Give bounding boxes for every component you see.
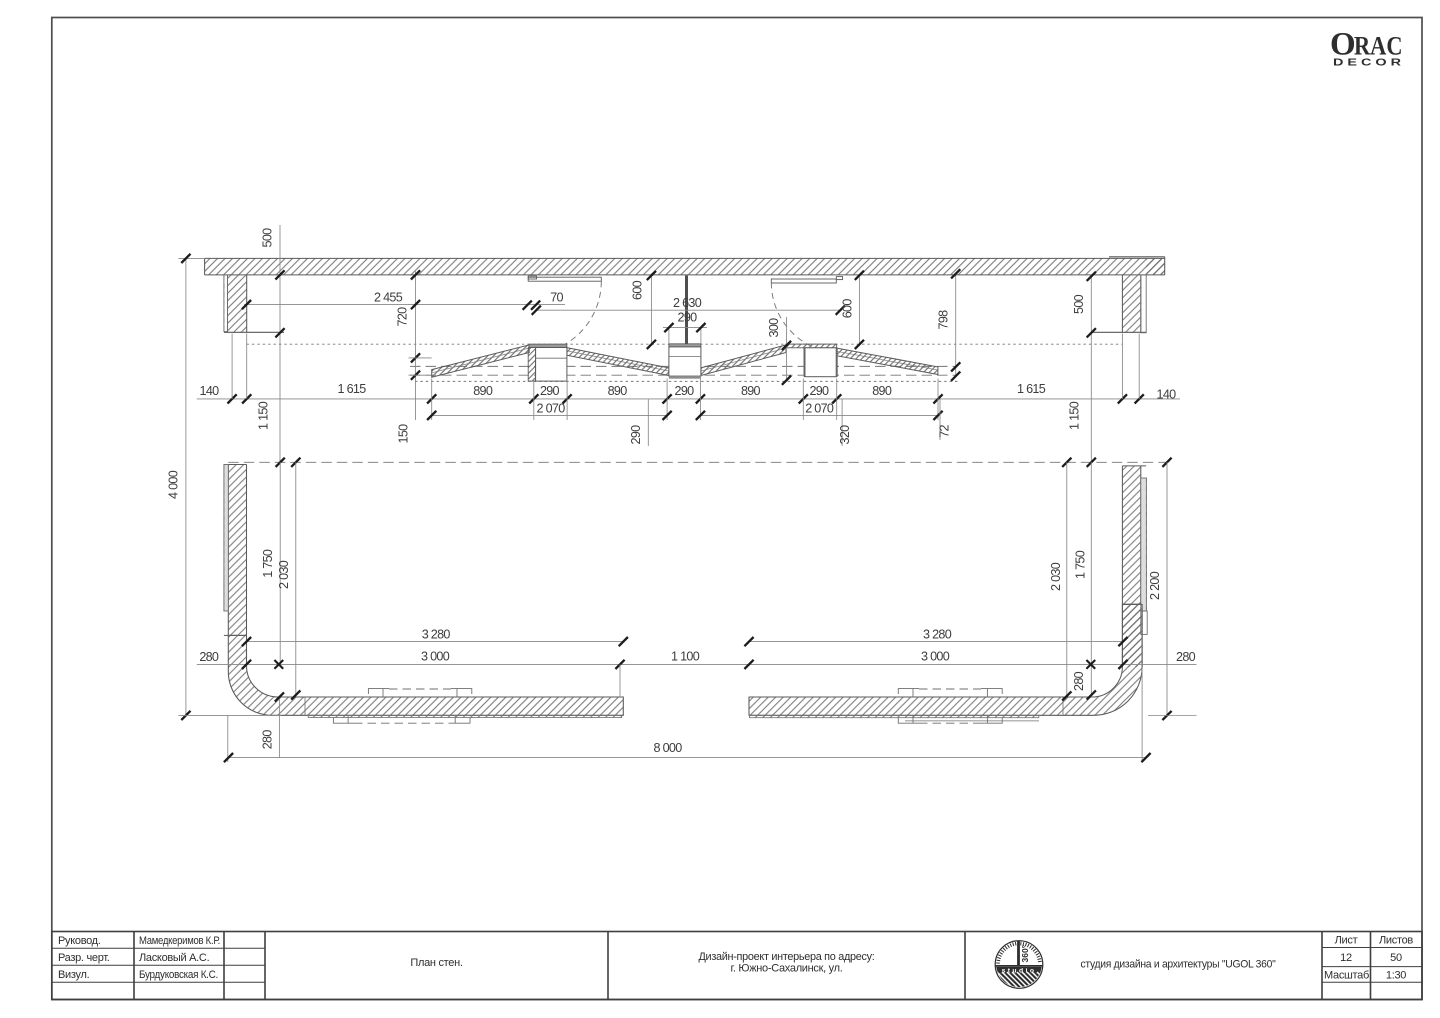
svg-text:3 280: 3 280 bbox=[923, 628, 952, 642]
svg-text:140: 140 bbox=[200, 384, 220, 398]
svg-text:Листов: Листов bbox=[1379, 935, 1413, 947]
svg-text:890: 890 bbox=[872, 384, 892, 398]
svg-text:290: 290 bbox=[678, 311, 698, 325]
svg-text:студия дизайна и архитектуры ": студия дизайна и архитектуры "UGOL 360" bbox=[1081, 959, 1276, 971]
svg-text:2 030: 2 030 bbox=[1049, 562, 1063, 591]
svg-text:Ласковый А.С.: Ласковый А.С. bbox=[139, 952, 210, 964]
svg-text:500: 500 bbox=[261, 228, 275, 248]
svg-text:720: 720 bbox=[396, 307, 410, 327]
svg-text:290: 290 bbox=[629, 425, 643, 445]
svg-text:600: 600 bbox=[840, 299, 854, 319]
svg-text:70: 70 bbox=[550, 291, 563, 305]
svg-text:3 000: 3 000 bbox=[921, 649, 950, 663]
svg-text:Масштаб: Масштаб bbox=[1324, 969, 1369, 981]
svg-text:RAC: RAC bbox=[1354, 32, 1403, 61]
svg-text:280: 280 bbox=[1072, 671, 1086, 691]
svg-text:8 000: 8 000 bbox=[653, 741, 682, 755]
svg-text:2 200: 2 200 bbox=[1148, 571, 1162, 600]
svg-text:798: 798 bbox=[936, 310, 950, 330]
svg-text:280: 280 bbox=[260, 730, 274, 750]
svg-text:1 750: 1 750 bbox=[261, 549, 275, 578]
svg-text:1 750: 1 750 bbox=[1074, 550, 1088, 579]
svg-text:150: 150 bbox=[397, 424, 411, 444]
svg-text:1 615: 1 615 bbox=[1017, 382, 1046, 396]
svg-text:1 150: 1 150 bbox=[1067, 401, 1081, 430]
svg-text:280: 280 bbox=[1176, 650, 1196, 664]
svg-text:2 630: 2 630 bbox=[673, 296, 702, 310]
svg-text:Руковод.: Руковод. bbox=[58, 935, 101, 947]
svg-text:Лист: Лист bbox=[1335, 935, 1358, 947]
svg-text:г. Южно-Сахалинск, ул.: г. Южно-Сахалинск, ул. bbox=[731, 962, 843, 974]
svg-text:studio: studio bbox=[1002, 968, 1037, 975]
svg-text:Дизайн-проект интерьера по адр: Дизайн-проект интерьера по адресу: bbox=[699, 951, 875, 963]
svg-text:3 000: 3 000 bbox=[421, 649, 450, 663]
svg-text:890: 890 bbox=[608, 384, 628, 398]
svg-text:1 615: 1 615 bbox=[337, 382, 366, 396]
svg-text:D E C O R: D E C O R bbox=[1333, 58, 1402, 69]
svg-text:290: 290 bbox=[540, 384, 560, 398]
svg-text:890: 890 bbox=[473, 384, 493, 398]
svg-text:Визул.: Визул. bbox=[58, 969, 90, 981]
svg-text:50: 50 bbox=[1390, 952, 1402, 964]
svg-text:1 150: 1 150 bbox=[257, 401, 271, 430]
svg-text:2 030: 2 030 bbox=[277, 560, 291, 589]
svg-text:Мамедкеримов К.Р.: Мамедкеримов К.Р. bbox=[139, 935, 220, 947]
svg-text:Разр. черт.: Разр. черт. bbox=[58, 952, 110, 964]
svg-text:890: 890 bbox=[741, 384, 761, 398]
svg-text:280: 280 bbox=[199, 650, 219, 664]
svg-text:72: 72 bbox=[938, 425, 952, 438]
svg-text:290: 290 bbox=[809, 384, 829, 398]
svg-text:320: 320 bbox=[838, 425, 852, 445]
svg-text:290: 290 bbox=[675, 384, 695, 398]
svg-text:План стен.: План стен. bbox=[410, 957, 462, 969]
svg-text:2 070: 2 070 bbox=[536, 401, 565, 415]
svg-text:Бурдуковская К.С.: Бурдуковская К.С. bbox=[139, 969, 218, 981]
svg-text:1:30: 1:30 bbox=[1386, 969, 1406, 981]
svg-text:2 070: 2 070 bbox=[805, 401, 834, 415]
svg-text:300: 300 bbox=[767, 318, 781, 338]
svg-text:360°: 360° bbox=[1020, 944, 1030, 962]
svg-text:140: 140 bbox=[1157, 388, 1177, 402]
svg-text:600: 600 bbox=[631, 280, 645, 300]
svg-text:1 100: 1 100 bbox=[671, 649, 700, 663]
svg-text:2 455: 2 455 bbox=[374, 291, 403, 305]
svg-text:12: 12 bbox=[1340, 952, 1352, 964]
svg-text:500: 500 bbox=[1072, 294, 1086, 314]
svg-text:3 280: 3 280 bbox=[422, 628, 451, 642]
svg-text:4 000: 4 000 bbox=[167, 470, 181, 499]
